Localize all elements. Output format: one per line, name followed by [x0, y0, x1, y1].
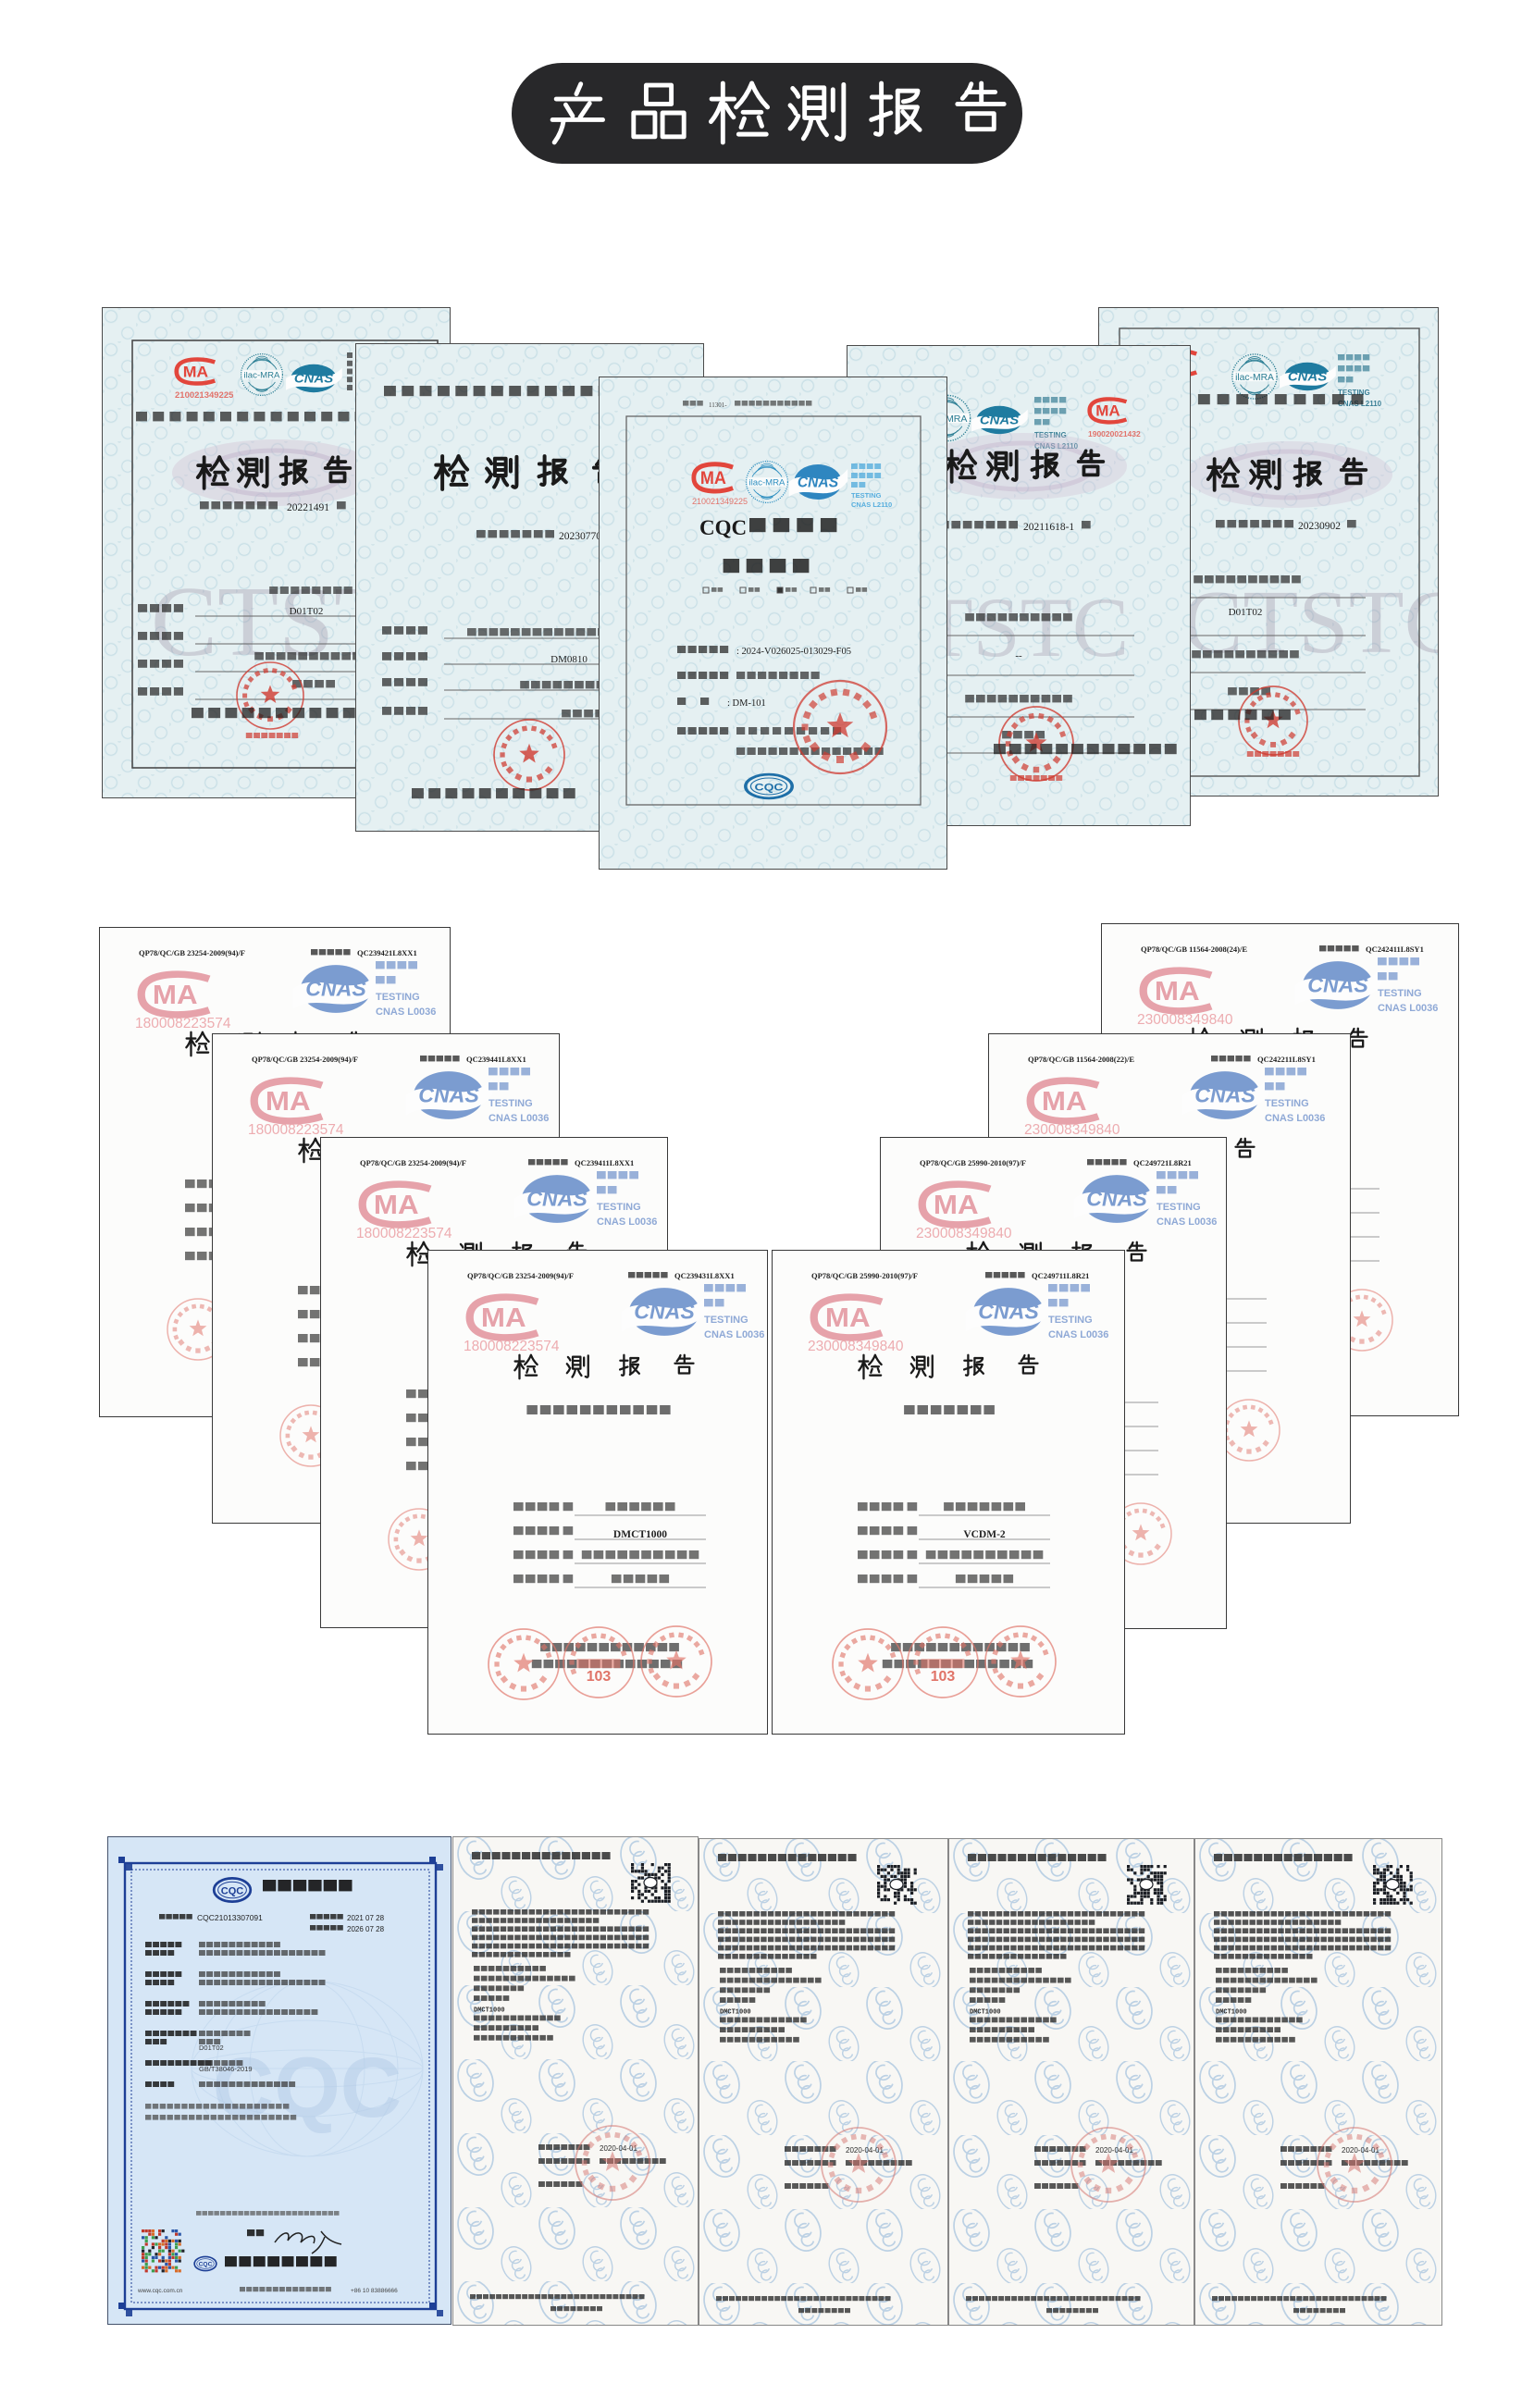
svg-text:QP78/QC/GB 25990-2010(97)/F: QP78/QC/GB 25990-2010(97)/F — [811, 1271, 918, 1280]
svg-text:QP78/QC/GB 11564-2008(22)/E: QP78/QC/GB 11564-2008(22)/E — [1028, 1055, 1134, 1064]
svg-text:QC239431L8XX1: QC239431L8XX1 — [674, 1271, 735, 1280]
svg-text:QP78/QC/GB 23254-2009(94)/F: QP78/QC/GB 23254-2009(94)/F — [139, 948, 245, 957]
svg-text:TESTING: TESTING — [851, 491, 882, 500]
svg-text:230008349840: 230008349840 — [916, 1226, 1012, 1241]
svg-text:180008223574: 180008223574 — [356, 1226, 452, 1241]
svg-text:QC242211L8SY1: QC242211L8SY1 — [1257, 1055, 1316, 1064]
svg-text:CNAS L0036: CNAS L0036 — [489, 1113, 549, 1124]
svg-text:DMCT1000: DMCT1000 — [1216, 2008, 1247, 2016]
svg-text:2026 07 28: 2026 07 28 — [347, 1925, 385, 1933]
svg-text:DMCT1000: DMCT1000 — [474, 2007, 505, 2014]
svg-text:QC249711L8R21: QC249711L8R21 — [1032, 1271, 1089, 1280]
svg-text:QC242411L8SY1: QC242411L8SY1 — [1366, 945, 1424, 954]
svg-text:DM0810: DM0810 — [551, 654, 588, 665]
svg-text:TESTING: TESTING — [597, 1202, 641, 1213]
svg-text:DMCT1000: DMCT1000 — [970, 2008, 1001, 2016]
svg-text:210021349225: 210021349225 — [692, 497, 748, 506]
svg-text:QP78/QC/GB 23254-2009(94)/F: QP78/QC/GB 23254-2009(94)/F — [360, 1158, 466, 1167]
svg-text:CNAS L0036: CNAS L0036 — [1378, 1003, 1438, 1014]
svg-text:CQC: CQC — [699, 516, 747, 539]
svg-text:TESTING: TESTING — [376, 992, 420, 1003]
svg-text:TESTING: TESTING — [1265, 1098, 1309, 1109]
svg-text:TESTING: TESTING — [489, 1098, 533, 1109]
svg-text:2021 07 28: 2021 07 28 — [347, 1914, 385, 1922]
svg-text:DMCT1000: DMCT1000 — [613, 1529, 667, 1540]
svg-text:CNAS L0036: CNAS L0036 — [1157, 1216, 1217, 1228]
svg-text:GB/T38046-2019: GB/T38046-2019 — [199, 2065, 253, 2073]
svg-text:190020021432: 190020021432 — [1088, 429, 1141, 438]
svg-text:: 2024-V026025-013029-F05: : 2024-V026025-013029-F05 — [736, 647, 851, 657]
svg-text:TESTING: TESTING — [1378, 988, 1422, 999]
svg-text:QC239421L8XX1: QC239421L8XX1 — [357, 948, 417, 957]
svg-text:TESTING: TESTING — [1157, 1202, 1201, 1213]
svg-text:180008223574: 180008223574 — [135, 1016, 231, 1031]
svg-text:210021349225: 210021349225 — [175, 390, 234, 401]
svg-text:QC239441L8XX1: QC239441L8XX1 — [466, 1055, 526, 1064]
svg-text:20211618-1: 20211618-1 — [1023, 522, 1074, 533]
svg-text:QC249721L8R21: QC249721L8R21 — [1133, 1158, 1192, 1167]
svg-text:: DM-101: : DM-101 — [727, 698, 766, 709]
svg-text:CNAS L0036: CNAS L0036 — [704, 1329, 764, 1340]
svg-text:CNAS L0036: CNAS L0036 — [1265, 1113, 1325, 1124]
svg-text:180008223574: 180008223574 — [248, 1122, 344, 1138]
svg-text:20230770: 20230770 — [559, 531, 601, 542]
svg-text:CQC: CQC — [213, 2041, 402, 2135]
svg-text:CNAS L0036: CNAS L0036 — [1048, 1329, 1108, 1340]
svg-text:230008349840: 230008349840 — [1024, 1122, 1120, 1138]
svg-text:CQC21013307091: CQC21013307091 — [197, 1913, 263, 1922]
svg-text:CNAS L2110: CNAS L2110 — [851, 500, 892, 509]
svg-text:VCDM-2: VCDM-2 — [963, 1529, 1006, 1540]
svg-text:11301-: 11301- — [709, 401, 727, 409]
svg-text:QP78/QC/GB 25990-2010(97)/F: QP78/QC/GB 25990-2010(97)/F — [920, 1158, 1026, 1167]
svg-text:D01T02: D01T02 — [199, 2044, 224, 2052]
svg-text:QP78/QC/GB 11564-2008(24)/E: QP78/QC/GB 11564-2008(24)/E — [1141, 945, 1247, 954]
svg-text:D01T02: D01T02 — [290, 606, 324, 617]
svg-text:D01T02: D01T02 — [1229, 607, 1263, 618]
svg-text:www.cqc.com.cn: www.cqc.com.cn — [137, 2288, 183, 2294]
svg-text:103: 103 — [931, 1669, 956, 1685]
svg-text:+86 10 83886666: +86 10 83886666 — [351, 2288, 398, 2294]
svg-text:QC239411L8XX1: QC239411L8XX1 — [575, 1158, 634, 1167]
svg-text:--: -- — [1015, 650, 1022, 661]
svg-text:CNAS L0036: CNAS L0036 — [597, 1216, 657, 1228]
svg-text:20230902: 20230902 — [1298, 521, 1341, 532]
svg-text:20221491: 20221491 — [287, 502, 329, 513]
svg-text:TESTING: TESTING — [704, 1315, 748, 1326]
svg-text:CNAS L0036: CNAS L0036 — [376, 1006, 436, 1018]
svg-text:DMCT1000: DMCT1000 — [720, 2008, 751, 2016]
svg-text:180008223574: 180008223574 — [464, 1339, 560, 1354]
svg-text:103: 103 — [587, 1669, 612, 1685]
svg-text:230008349840: 230008349840 — [808, 1339, 904, 1354]
svg-text:QP78/QC/GB 23254-2009(94)/F: QP78/QC/GB 23254-2009(94)/F — [252, 1055, 358, 1064]
svg-text:230008349840: 230008349840 — [1137, 1012, 1233, 1028]
svg-text:QP78/QC/GB 23254-2009(94)/F: QP78/QC/GB 23254-2009(94)/F — [467, 1271, 574, 1280]
svg-text:TESTING: TESTING — [1048, 1315, 1093, 1326]
